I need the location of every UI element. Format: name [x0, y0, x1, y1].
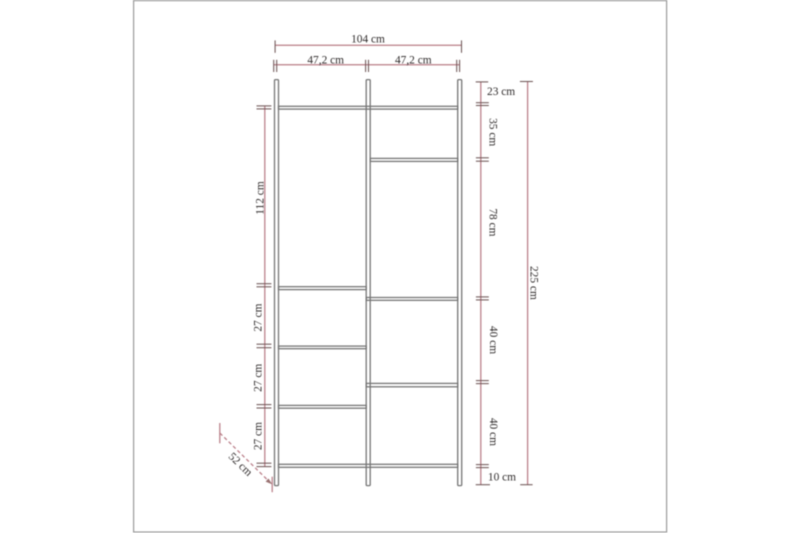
svg-text:225 cm: 225 cm — [527, 266, 539, 300]
svg-text:40 cm: 40 cm — [487, 326, 499, 354]
svg-text:10 cm: 10 cm — [488, 472, 516, 484]
svg-text:40 cm: 40 cm — [487, 418, 499, 446]
svg-text:47,2 cm: 47,2 cm — [307, 54, 344, 66]
svg-text:27 cm: 27 cm — [252, 422, 264, 450]
svg-text:104 cm: 104 cm — [351, 34, 385, 46]
svg-text:27 cm: 27 cm — [252, 364, 264, 392]
svg-text:112 cm: 112 cm — [254, 181, 266, 215]
svg-text:27 cm: 27 cm — [252, 303, 264, 331]
svg-text:35 cm: 35 cm — [487, 118, 499, 146]
svg-text:47,2 cm: 47,2 cm — [395, 54, 432, 66]
svg-text:23 cm: 23 cm — [487, 86, 515, 98]
svg-text:78 cm: 78 cm — [487, 208, 499, 236]
